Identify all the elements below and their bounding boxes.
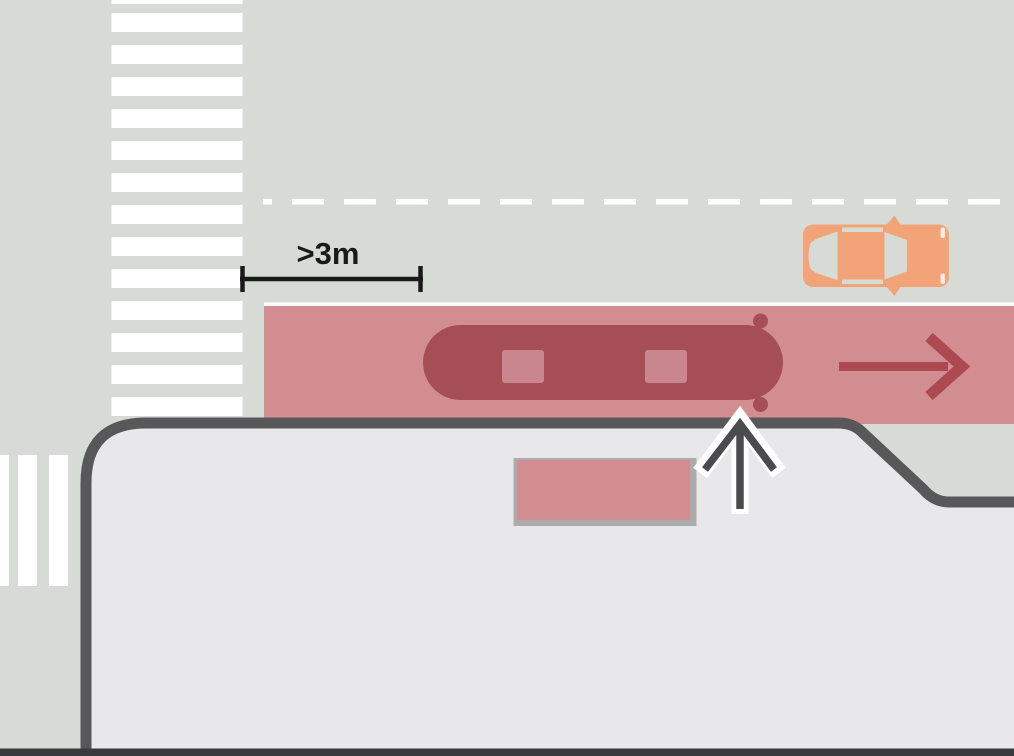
bus-lane-edge-line (264, 303, 1014, 307)
crosswalk-stripe (112, 301, 243, 320)
crosswalk-stripe (112, 237, 243, 256)
bus (423, 314, 783, 413)
crosswalk-stripe (18, 455, 37, 586)
bus-body (423, 325, 783, 400)
bus-door (645, 350, 687, 383)
crosswalk-stripe (49, 455, 68, 586)
bus-stop-marking (514, 458, 697, 526)
crosswalk-stripe (112, 269, 243, 288)
bus-mirror (753, 397, 768, 412)
crosswalk-stripe (112, 397, 243, 416)
crosswalk-stripe (112, 333, 243, 352)
measure-label: >3m (297, 236, 360, 271)
crosswalk-stripe (112, 365, 243, 384)
crosswalk-stripe (112, 173, 243, 192)
car-headlight (941, 228, 946, 239)
crosswalk-stripe (112, 45, 243, 64)
crosswalk-stripe (112, 141, 243, 160)
crosswalk-stripe (112, 0, 243, 4)
crosswalk-stripe (112, 77, 243, 96)
bus-door (502, 350, 544, 383)
crosswalk-stripe (112, 13, 243, 32)
car-side-window (842, 280, 883, 285)
bottom-edge-bar (0, 749, 1014, 756)
crosswalk-stripe (112, 109, 243, 128)
car-windshield (885, 232, 908, 280)
bus-stop-marking-fill (517, 460, 690, 520)
car-headlight (941, 274, 946, 285)
car (803, 216, 949, 297)
crosswalk-stripe (0, 455, 9, 586)
bus-mirror (753, 314, 768, 329)
traffic-diagram-canvas: >3m (0, 0, 1014, 756)
crosswalk-stripe (112, 205, 243, 224)
traffic-diagram: >3m (0, 0, 1014, 756)
car-side-window (842, 228, 883, 233)
